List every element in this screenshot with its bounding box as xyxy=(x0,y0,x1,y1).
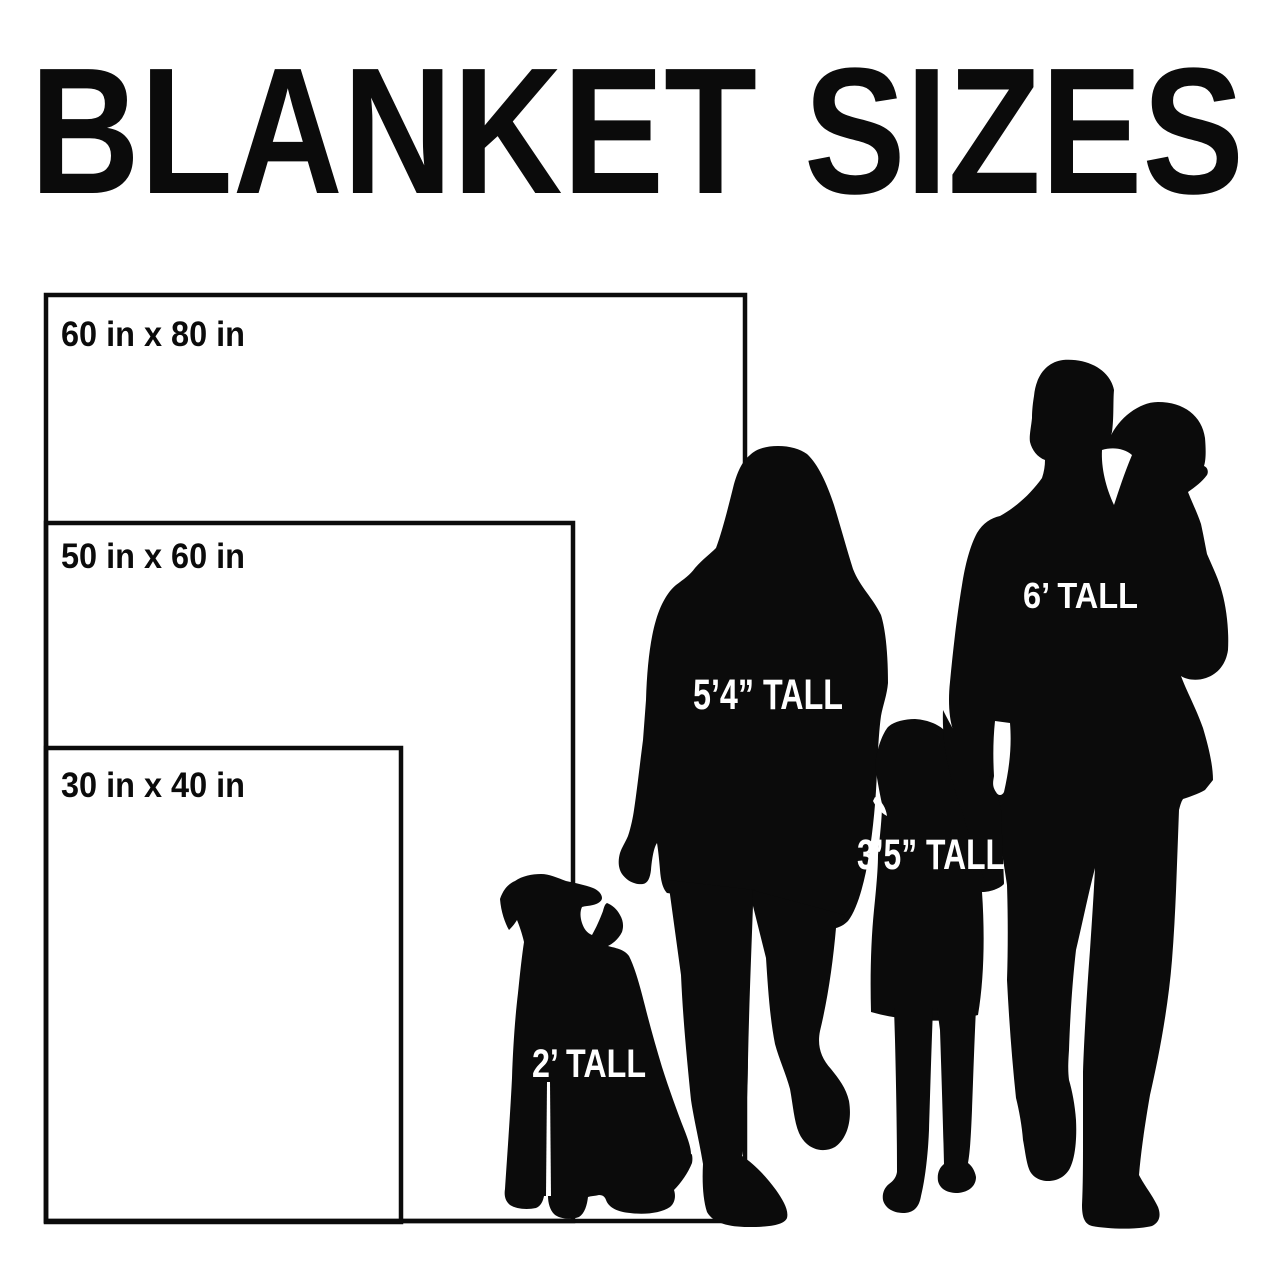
svg-text:50 in x 60 in: 50 in x 60 in xyxy=(61,537,245,576)
svg-text:2’ TALL: 2’ TALL xyxy=(532,1042,646,1086)
svg-text:5’4” TALL: 5’4” TALL xyxy=(693,671,843,719)
svg-text:6’ TALL: 6’ TALL xyxy=(1023,575,1138,616)
svg-text:30 in x 40 in: 30 in x 40 in xyxy=(61,766,245,805)
svg-text:3’5” TALL: 3’5” TALL xyxy=(857,831,1005,879)
svg-text:60 in x 80 in: 60 in x 80 in xyxy=(61,315,245,354)
svg-text:SIZES: SIZES xyxy=(804,31,1244,232)
svg-text:BLANKET: BLANKET xyxy=(30,31,757,232)
